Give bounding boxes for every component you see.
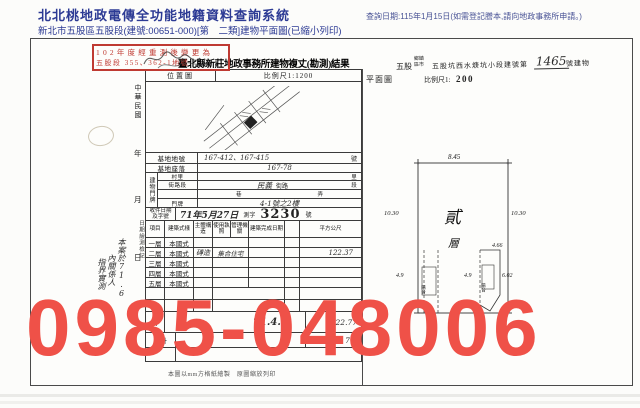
floor-style: 本國式 — [165, 238, 194, 247]
col-blank — [285, 221, 300, 237]
receipt-row: 收件日期及字號 71年5月27日 測字 3230 號 — [146, 208, 361, 221]
plan-section: 五股坑西水焿坑小段建號第 — [432, 60, 528, 72]
plan-unit-bottom: 區市 — [414, 62, 424, 68]
building-label: 建物門牌 — [146, 173, 158, 207]
plan-scale-label: 比例尺1: — [424, 75, 450, 85]
village-unit: 里 — [347, 173, 361, 180]
floor-area — [300, 238, 361, 247]
document-info-line: 新北市五股區五股段(建號:00651-000)[第 二類]建物平面圖(已縮小列印… — [38, 23, 342, 37]
receipt-word: 測字 — [243, 210, 255, 219]
street-unit: 段 — [347, 181, 361, 189]
floor-blank — [285, 248, 300, 257]
scan-artifact — [0, 394, 640, 397]
side-section-label: 日期繪測檢記 — [137, 220, 145, 259]
floor-name: 一層 — [146, 238, 165, 247]
street-value: 民義 — [257, 181, 272, 189]
col-structure: 主體構造 — [194, 221, 213, 237]
phone-watermark: 0985-048006 — [26, 288, 542, 368]
floor-date — [249, 258, 285, 267]
floor-area: 122.37 — [300, 248, 361, 257]
table-row: 基地座落 167-78 — [146, 164, 361, 173]
receipt-label: 收件日期及字號 — [146, 208, 176, 220]
floor-structure — [194, 268, 213, 277]
floor-blank — [285, 268, 300, 277]
floor-structure — [194, 258, 213, 267]
floor-use — [213, 268, 249, 277]
door-row: 門牌 4-1號之2樓 — [158, 199, 361, 208]
floor-name: 三層 — [146, 258, 165, 267]
floor-structure: 磚造 — [194, 248, 213, 257]
era-label: 中華民國 — [133, 84, 143, 120]
floor-blank — [285, 238, 300, 247]
floor-use — [213, 258, 249, 267]
floor-row-3: 三層 本國式 — [146, 258, 361, 268]
floor-name: 四層 — [146, 268, 165, 277]
street-print: 街路 — [276, 181, 288, 189]
receipt-date: 71年5月27日 — [180, 208, 238, 220]
lane-row: 巷 弄 — [158, 190, 361, 199]
floor-name: 二層 — [146, 248, 165, 257]
plan-unit: 鄉鎮 區市 — [414, 57, 424, 68]
plan-tail: 號建物 — [566, 58, 590, 69]
street-label: 街路段 — [158, 181, 198, 189]
margin-note-2: 內關係人 — [106, 254, 117, 286]
site-no-label: 基地地號 — [146, 153, 198, 163]
col-style: 建築式樣 — [165, 221, 194, 237]
location-map-sketch — [198, 86, 308, 150]
floor-use: 集合住宅 — [213, 248, 249, 257]
floor-area — [300, 268, 361, 277]
site-no-value: 167-412、167-415 — [198, 153, 347, 163]
alley-label: 弄 — [317, 190, 323, 198]
door-label: 門牌 — [158, 199, 198, 208]
table-row: 基地地號 167-412、167-415 號 — [146, 153, 361, 164]
lane-blank — [158, 190, 198, 198]
village-label: 村里 — [158, 173, 198, 180]
year-label: 年 — [134, 148, 142, 159]
query-date: 查詢日期:115年1月15日(如需登記謄本,請向地政事務所申請。) — [366, 11, 582, 22]
plan-scale-value: 200 — [456, 74, 474, 84]
floor-date — [249, 248, 285, 257]
floor-mark-2: 層 — [448, 238, 460, 250]
col-item: 項目 — [146, 221, 165, 237]
floor-date — [249, 238, 285, 247]
floor-style: 本國式 — [165, 248, 194, 257]
building-address-group: 建物門牌 村里 里 街路段 民義 街路 段 — [146, 173, 361, 208]
plan-unit-top: 鄉鎮 — [414, 57, 424, 63]
col-sqm: 平方公尺 — [300, 221, 361, 237]
floor-use — [213, 238, 249, 247]
floor-style: 本國式 — [165, 258, 194, 267]
village-row: 村里 里 — [158, 173, 361, 181]
scan-artifact — [0, 401, 640, 404]
dim-left: 10.30 — [384, 210, 399, 217]
floor-area — [300, 258, 361, 267]
dim-d3: 4.66 — [492, 242, 503, 249]
site-no-unit: 號 — [347, 153, 361, 163]
floor-row-1: 一層 本國式 — [146, 238, 361, 248]
plan-building-number: 1465 — [534, 54, 569, 70]
lane-label: 巷 — [236, 190, 242, 198]
dim-d1: 4.9 — [396, 272, 404, 279]
street-row: 街路段 民義 街路 段 — [158, 181, 361, 190]
door-value: 4-1號之2樓 — [198, 199, 361, 208]
dim-top: 8.45 — [448, 153, 461, 161]
location-map-scale: 比例尺1:1200 — [216, 70, 361, 81]
scanned-cadastral-document-page: 北北桃地政電傳全功能地籍資料查詢系統 新北市五股區五股段(建號:00651-00… — [0, 0, 640, 408]
col-license: 使用執照 — [213, 221, 231, 237]
floor-style: 本國式 — [165, 268, 194, 277]
col-agency: 管理機關 — [231, 221, 249, 237]
floor-structure — [194, 238, 213, 247]
system-title: 北北桃地政電傳全功能地籍資料查詢系統 — [38, 5, 290, 24]
floor-row-4: 四層 本國式 — [146, 268, 361, 278]
col-completion: 建築完成日期 — [249, 221, 285, 237]
dim-right: 10.30 — [511, 210, 526, 217]
dim-d4: 6.02 — [502, 273, 513, 279]
site-loc-label: 基地座落 — [146, 164, 198, 172]
plan-label: 平面圖 — [366, 74, 393, 85]
floor-date — [249, 268, 285, 277]
site-loc-value: 167-78 — [198, 164, 361, 172]
plan-town: 五股 — [396, 61, 412, 72]
floor-mark-1: 貳 — [444, 208, 464, 227]
floor-blank — [285, 258, 300, 267]
receipt-unit: 號 — [306, 210, 312, 219]
dim-d2: 4.9 — [464, 272, 472, 279]
month-label: 月 — [134, 194, 142, 205]
receipt-number: 3230 — [260, 208, 300, 220]
signature-scribble — [138, 44, 224, 74]
floor-row-2: 二層 本國式 磚造 集合住宅 122.37 — [146, 248, 361, 258]
village-value — [198, 173, 347, 180]
floor-table-header: 項目 建築式樣 主體構造 使用執照 管理機關 建築完成日期 平方公尺 — [146, 221, 361, 238]
